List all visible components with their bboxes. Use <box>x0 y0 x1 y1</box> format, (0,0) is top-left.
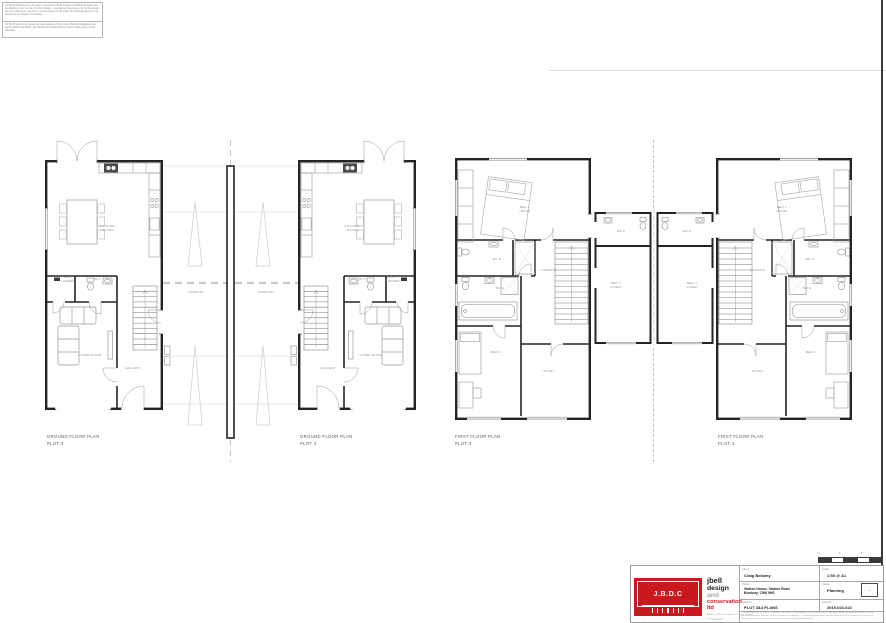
room-label-carport: CARPORT <box>188 290 204 294</box>
room-label-bed4: BED 4 (OVER) <box>610 281 622 289</box>
room-label-hall: HALLWAY <box>125 366 141 370</box>
scale-label: Scale: <box>822 568 829 571</box>
logo-rule <box>642 605 694 606</box>
room-label-living: LIVING ROOM <box>79 353 102 357</box>
plan-title-first-plot3: FIRST FLOOR PLAN PLOT 3 <box>455 434 501 447</box>
project-value: Station House, Station Road Bunbury, CW6… <box>744 587 790 596</box>
revision-box: - <box>861 583 878 597</box>
status-label: Status: <box>822 583 830 586</box>
room-label-hall: HALLWAY <box>320 366 336 370</box>
logo-acronym: J.B.D.C <box>634 591 702 598</box>
room-label-ensuite: EN-S <box>806 257 814 261</box>
carport-area <box>163 140 298 462</box>
room-label-bed1: BED 1 (MAIN) <box>777 205 788 213</box>
sheet-top-line <box>548 70 886 71</box>
room-label-bed2: BED 2 <box>491 350 501 354</box>
room-label-kitchen: KITCHEN / DINING <box>344 224 361 232</box>
titleblock-divider <box>819 566 820 611</box>
sheet-right-border <box>881 0 883 623</box>
room-label-bath: BATH <box>803 286 812 290</box>
ground-floor-plan-plot4 <box>290 138 416 410</box>
room-label-carport: CARPORT <box>258 290 274 294</box>
ground-floor-plan-plot3 <box>45 138 171 410</box>
scale-tick-2: 2 <box>861 552 862 555</box>
titleblock-divider <box>739 599 883 600</box>
drawing-value: PLOT 3&4 PLANS <box>744 605 778 610</box>
room-label-wc: W.C. <box>94 277 102 281</box>
titleblock-divider <box>739 581 883 582</box>
drawing-sheet: NOTE: All drawings are to be read in con… <box>0 0 886 623</box>
centreline-dash-top <box>653 140 654 208</box>
scale-unit: m <box>876 556 879 560</box>
room-label-study: STUDY <box>543 369 554 373</box>
client-value: Craig Bellamy <box>744 573 771 578</box>
room-label-wc: W.C. <box>359 277 367 281</box>
room-label-bed4: BED 4 (OVER) <box>686 281 698 289</box>
centreline-dash-bottom <box>653 348 654 462</box>
plan-title-first-plot4: FIRST FLOOR PLAN PLOT 4 <box>718 434 764 447</box>
drawing-label: Drawing: <box>742 601 752 604</box>
scale-bar-segments <box>818 557 883 563</box>
company-name-line3: conservation ltd <box>707 599 737 612</box>
party-wall <box>227 166 234 438</box>
project-label: Project: <box>742 583 751 586</box>
title-block: J.B.D.C jbell design and conservation lt… <box>630 565 884 623</box>
room-label-plant: PLANT / LARDER <box>386 275 400 283</box>
first-floor-link-block <box>594 208 714 345</box>
room-label-kitchen: KITCHEN / DINING <box>99 224 116 232</box>
room-label-study: STUDY <box>752 369 763 373</box>
graphic-scale-bar: 0 1 2 m <box>818 552 882 564</box>
room-label-landing: LANDING <box>750 268 765 272</box>
room-label-living: LIVING ROOM <box>360 353 383 357</box>
first-floor-plan-plot4 <box>710 158 852 420</box>
plan-title-ground-plot3: GROUND FLOOR PLAN PLOT 3 <box>47 434 100 447</box>
room-label-ensuite: EN-S <box>493 257 501 261</box>
room-label-bed2: BED 2 <box>806 350 816 354</box>
company-phone: T: 01829 752744 <box>707 619 737 622</box>
plan-title-ground-plot4: GROUND FLOOR PLAN PLOT 4 <box>300 434 353 447</box>
company-name-line2: design and <box>707 585 737 599</box>
copyright-note: © THIS DRAWING IS THE COPYRIGHT OF J BEL… <box>741 612 880 621</box>
company-name-line1: jbell <box>707 577 737 585</box>
room-label-link-ensuite: EN-S <box>683 229 691 233</box>
scale-tick-1: 1 <box>839 552 840 555</box>
scale-tick-0: 0 <box>818 552 819 555</box>
room-label-bed1: BED 1 (MAIN) <box>520 205 531 213</box>
secondary-notes-box: NOTE: All works to be carried out in acc… <box>2 21 103 38</box>
dwg-number-value: 2019-023-022 <box>827 605 852 610</box>
room-label-bath: BATH <box>496 286 505 290</box>
company-details: jbell design and conservation ltd Addres… <box>707 577 737 623</box>
logo-tick-marks <box>634 608 702 613</box>
client-label: Client: <box>742 568 749 571</box>
dwg-number-label: Dwg No: <box>822 601 832 604</box>
company-address: Address: Holly Trees Business Centre, Ch… <box>707 614 737 617</box>
room-label-link-ensuite: EN-S <box>617 229 625 233</box>
scale-value: 1:50 @ A1 <box>827 573 846 578</box>
status-value: Planning <box>827 588 844 593</box>
room-label-plant: PLANT / LARDER <box>61 275 75 283</box>
room-label-landing: LANDING <box>541 268 556 272</box>
first-floor-plan-plot3 <box>455 158 597 420</box>
company-logo: J.B.D.C <box>634 578 702 616</box>
